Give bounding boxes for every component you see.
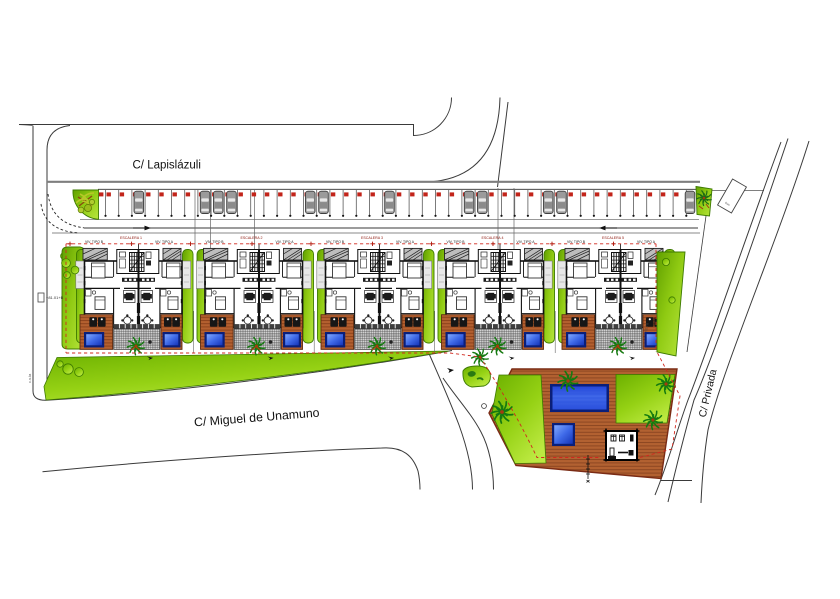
svg-text:VIV. TIPO A: VIV. TIPO A <box>396 240 415 244</box>
svg-text:ESCALERA 4: ESCALERA 4 <box>482 236 504 240</box>
svg-text:ESCALERA 3: ESCALERA 3 <box>361 236 383 240</box>
svg-text:VIV. TIPO B: VIV. TIPO B <box>326 240 345 244</box>
svg-text:VIV. TIPO B: VIV. TIPO B <box>567 240 586 244</box>
svg-text:+81.01+B: +81.01+B <box>46 295 64 300</box>
svg-text:ESCALERA 5: ESCALERA 5 <box>602 236 624 240</box>
svg-text:ESCALERA 2: ESCALERA 2 <box>241 236 263 240</box>
svg-text:VIV. TIPO A: VIV. TIPO A <box>517 240 536 244</box>
svg-text:VIV. TIPO B: VIV. TIPO B <box>446 240 465 244</box>
svg-text:VIV. TIPO B: VIV. TIPO B <box>85 240 104 244</box>
svg-text:VIV. TIPO A: VIV. TIPO A <box>276 240 295 244</box>
svg-text:ESCALERA 1: ESCALERA 1 <box>120 236 142 240</box>
svg-text:C/ Lapislázuli: C/ Lapislázuli <box>133 160 201 172</box>
svg-text:VIV. TIPO B: VIV. TIPO B <box>205 240 224 244</box>
svg-text:c.v.ía: c.v.ía <box>27 373 32 383</box>
svg-text:VIV. TIPO A: VIV. TIPO A <box>155 240 174 244</box>
svg-text:VIV. TIPO A: VIV. TIPO A <box>637 240 656 244</box>
